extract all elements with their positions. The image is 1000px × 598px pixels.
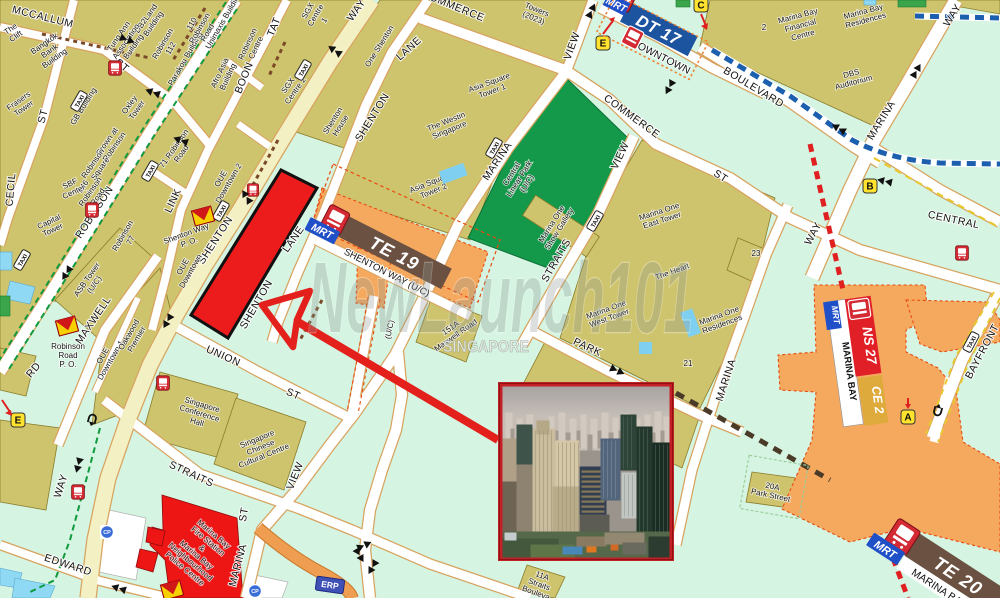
svg-text:Robinson: Robinson xyxy=(51,342,85,351)
svg-text:Road: Road xyxy=(58,351,77,360)
svg-text:SINGAPORE: SINGAPORE xyxy=(443,338,529,356)
svg-text:A: A xyxy=(904,413,911,424)
svg-text:E: E xyxy=(15,416,22,427)
svg-text:23: 23 xyxy=(752,249,761,258)
svg-text:E: E xyxy=(600,39,607,50)
svg-text:P. O.: P. O. xyxy=(59,360,76,369)
svg-text:B: B xyxy=(866,182,873,193)
svg-text:2: 2 xyxy=(762,23,767,32)
svg-text:C: C xyxy=(697,1,704,12)
svg-text:21: 21 xyxy=(684,359,693,368)
svg-text:ST: ST xyxy=(237,506,251,522)
